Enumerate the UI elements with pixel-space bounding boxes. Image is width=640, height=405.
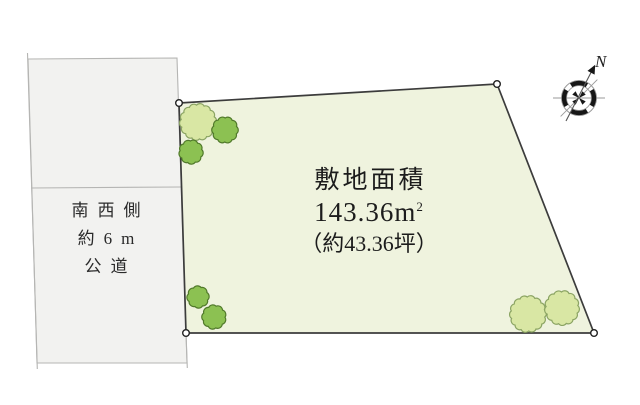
site-area-tsubo: （約43.36坪）	[238, 229, 500, 259]
tree-icon	[212, 117, 239, 143]
road-label-side: 南西側	[31, 197, 181, 225]
site-area-value: 143.36m2	[238, 196, 500, 229]
tree-icon	[179, 140, 203, 164]
corner-marker	[591, 330, 598, 337]
site-area-superscript: 2	[416, 199, 424, 214]
road-label-type: 公道	[31, 253, 181, 281]
north-label: N	[594, 52, 608, 71]
tree-icon	[202, 305, 226, 329]
corner-marker	[494, 81, 501, 88]
road-label: 南西側 約6m 公道	[31, 197, 181, 281]
tree-icon	[510, 296, 547, 333]
tree-icon	[187, 286, 209, 308]
site-area-number: 143.36m	[314, 197, 416, 227]
site-area-title: 敷地面積	[238, 165, 500, 196]
road-label-width: 約6m	[31, 225, 181, 253]
site-plan-canvas: N 敷地面積 143.36m2 （約43.36坪） 南西側 約6m 公道	[0, 0, 640, 405]
site-area-label: 敷地面積 143.36m2 （約43.36坪）	[238, 165, 500, 259]
corner-marker	[183, 330, 190, 337]
compass-icon: N	[553, 52, 608, 121]
corner-marker	[176, 100, 183, 107]
